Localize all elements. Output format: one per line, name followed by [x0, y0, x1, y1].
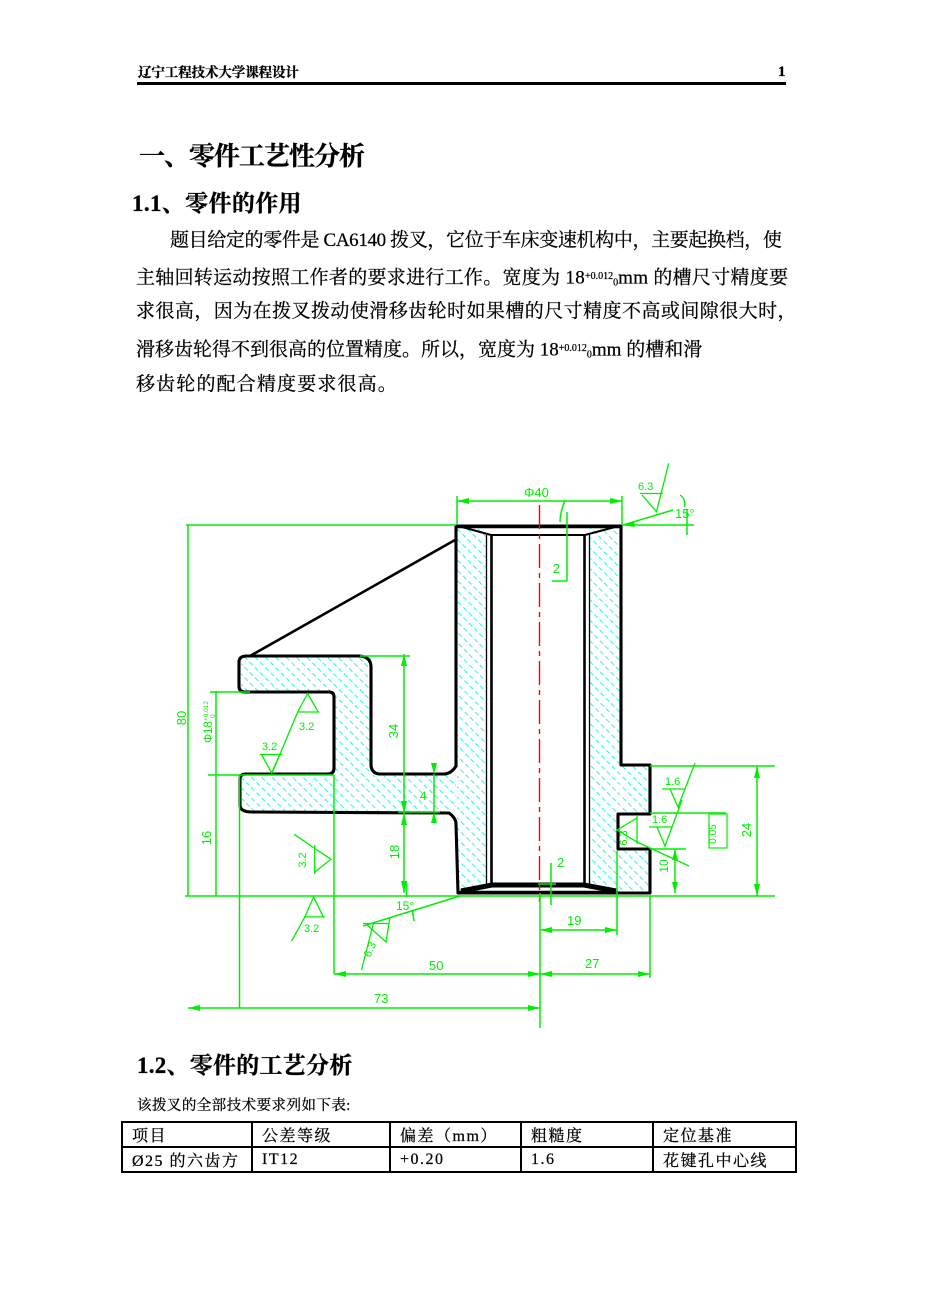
svg-text:10: 10	[657, 859, 671, 873]
svg-text:15°: 15°	[675, 506, 695, 521]
svg-text:3.2: 3.2	[299, 721, 314, 733]
svg-text:3.2: 3.2	[297, 852, 309, 867]
svg-text:0.05: 0.05	[708, 824, 719, 844]
svg-text:Φ40: Φ40	[524, 485, 549, 500]
svg-text:27: 27	[585, 956, 599, 971]
svg-text:18: 18	[387, 845, 402, 859]
svg-text:2: 2	[557, 855, 564, 870]
svg-text:6.3: 6.3	[362, 940, 379, 959]
svg-text:6.3: 6.3	[618, 830, 630, 845]
svg-text:15°: 15°	[396, 899, 414, 913]
svg-text:Φ18+0.0120: Φ18+0.0120	[203, 701, 217, 743]
svg-text:1.6: 1.6	[665, 776, 680, 788]
svg-text:34: 34	[386, 724, 401, 738]
svg-text:3.2: 3.2	[262, 741, 277, 753]
svg-text:73: 73	[374, 991, 388, 1006]
svg-text:4: 4	[420, 789, 427, 803]
svg-text:6.3: 6.3	[638, 481, 653, 493]
svg-text:3.2: 3.2	[304, 923, 319, 935]
svg-text:50: 50	[429, 958, 443, 973]
svg-text:80: 80	[174, 711, 189, 725]
svg-text:2: 2	[553, 561, 560, 576]
svg-text:1.6: 1.6	[652, 814, 667, 826]
svg-text:16: 16	[199, 831, 214, 845]
svg-text:19: 19	[567, 913, 581, 928]
svg-text:24: 24	[739, 823, 754, 837]
